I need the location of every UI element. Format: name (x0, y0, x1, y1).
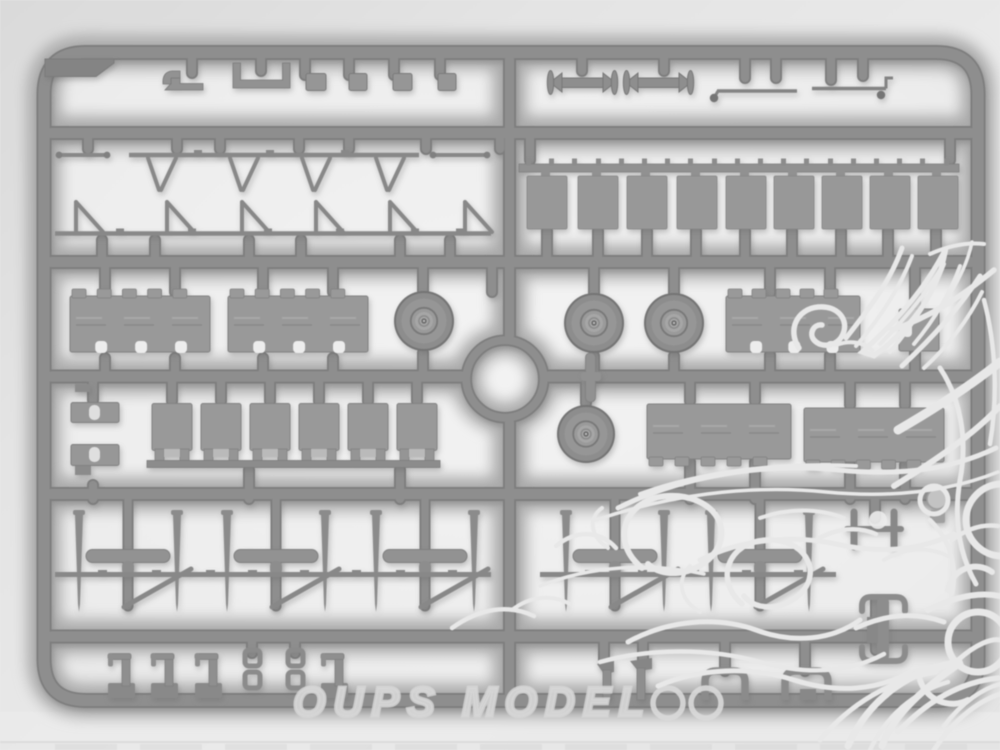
svg-text:OUPS MODEL: OUPS MODEL (293, 678, 645, 725)
